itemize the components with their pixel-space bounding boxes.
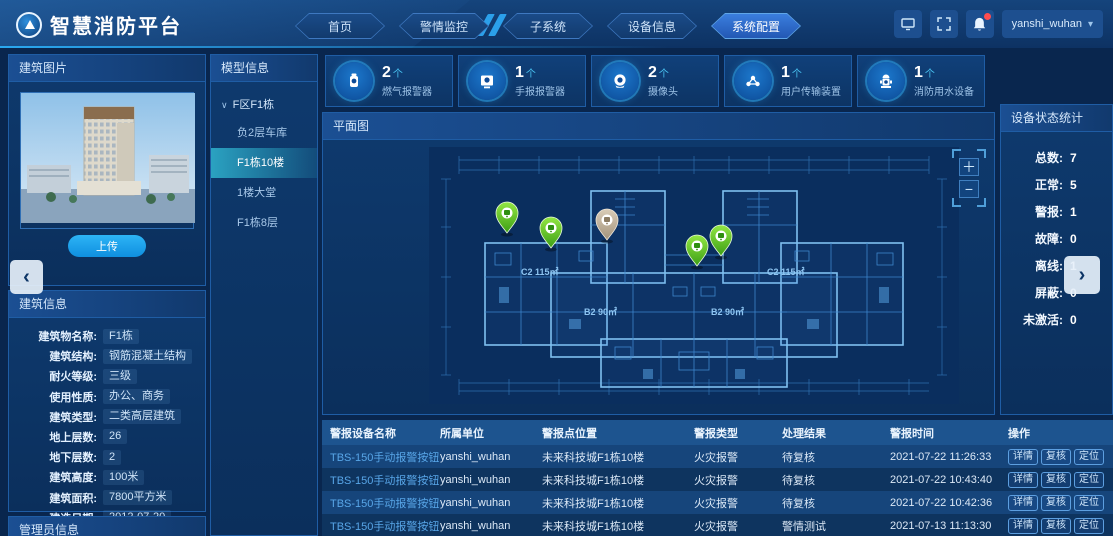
app-header: 智慧消防平台 首页 警情监控 子系统 设备信息 系统配置 y [0, 0, 1113, 48]
col-header-time: 警报时间 [890, 425, 1008, 441]
detail-button[interactable]: 详情 [1008, 495, 1038, 511]
result-cell: 待复核 [782, 472, 890, 488]
col-header-unit: 所属单位 [440, 425, 542, 441]
col-header-location: 警报点位置 [542, 425, 694, 441]
chevron-right-icon: › [1079, 264, 1086, 287]
status-label: 警报: [1001, 203, 1063, 220]
time-cell: 2021-07-22 11:26:33 [890, 451, 1008, 463]
stat-card-fire-water: 1个 消防用水设备 [857, 55, 985, 107]
transmission-device-icon [734, 62, 772, 100]
nav-tab-label: 警情监控 [400, 14, 488, 38]
info-row: 建筑结构:钢筋混凝土结构 [9, 348, 199, 364]
field-value: 7800平方米 [103, 490, 172, 505]
stat-count: 1 [914, 64, 923, 81]
nav-tab-home[interactable]: 首页 [295, 13, 385, 39]
col-header-device-name: 警报设备名称 [322, 425, 440, 441]
location-cell: 未来科技城F1栋10楼 [542, 472, 694, 488]
stat-count: 1 [781, 64, 790, 81]
actions-cell: 详情 复核 定位 [1008, 495, 1113, 511]
table-header-row: 警报设备名称 所属单位 警报点位置 警报类型 处理结果 警报时间 操作 [322, 420, 1113, 445]
camera-icon [601, 62, 639, 100]
stat-count: 1 [515, 64, 524, 81]
info-row: 地下层数:2 [9, 449, 199, 465]
manual-alarm-icon [468, 62, 506, 100]
building-photo [20, 92, 194, 229]
floorplan-drawing: C2 115㎡ B2 90㎡ B2 90㎡ C2 115㎡ [429, 147, 959, 404]
logo-icon [16, 12, 42, 38]
detail-button[interactable]: 详情 [1008, 449, 1038, 465]
room-label: B2 90㎡ [711, 306, 744, 317]
field-value: 100米 [103, 470, 144, 485]
plan-zoom-control: ＋ − [952, 149, 986, 207]
table-row[interactable]: TBS-150手动报警按钮 yanshi_wuhan 未来科技城F1栋10楼 火… [322, 445, 1113, 468]
field-value: 2 [103, 450, 121, 465]
unit-cell: yanshi_wuhan [440, 497, 542, 509]
model-info-panel: 模型信息 ∨F区F1栋 负2层车库 F1栋10楼 1楼大堂 F1栋8层 [210, 54, 318, 536]
type-cell: 火灾报警 [694, 518, 782, 534]
device-marker-normal[interactable] [686, 235, 708, 270]
stat-card-camera: 2个 摄像头 [591, 55, 719, 107]
tree-item-lobby[interactable]: 1楼大堂 [211, 178, 317, 208]
field-label: 地上层数: [9, 429, 97, 445]
actions-cell: 详情 复核 定位 [1008, 518, 1113, 534]
field-value: 26 [103, 429, 127, 444]
device-name-link[interactable]: TBS-150手动报警按钮 [322, 472, 440, 488]
tree-group-f1[interactable]: ∨F区F1栋 [211, 82, 317, 118]
stat-label: 消防用水设备 [914, 83, 974, 98]
tree-group-label: F区F1栋 [233, 99, 275, 111]
field-label: 耐火等级: [9, 368, 97, 384]
building-photo-image [21, 93, 195, 223]
review-button[interactable]: 复核 [1041, 495, 1071, 511]
locate-button[interactable]: 定位 [1074, 518, 1104, 534]
field-label: 建筑高度: [9, 469, 97, 485]
stat-card-transmission-device: 1个 用户传输装置 [724, 55, 852, 107]
room-label: C2 115㎡ [521, 266, 559, 277]
status-label: 故障: [1001, 230, 1063, 247]
header-actions: yanshi_wuhan ▾ [894, 10, 1103, 38]
result-cell: 警情测试 [782, 518, 890, 534]
device-name-link[interactable]: TBS-150手动报警按钮 [322, 449, 440, 465]
time-cell: 2021-07-13 11:13:30 [890, 520, 1008, 532]
device-status-list: 总数:7 正常:5 警报:1 故障:0 离线:1 屏蔽:0 未激活:0 [1001, 132, 1112, 333]
field-label: 建筑物名称: [9, 328, 97, 344]
floor-plan-panel: 平面图 [322, 112, 995, 415]
panel-title: 平面图 [323, 113, 994, 140]
stat-card-gas-alarm: 2个 燃气报警器 [325, 55, 453, 107]
monitor-icon [900, 16, 916, 32]
status-value: 5 [1070, 178, 1077, 192]
stat-label: 手报报警器 [515, 83, 565, 98]
chevron-down-icon: ▾ [1088, 19, 1093, 30]
stat-suffix: 个 [393, 69, 403, 80]
info-row: 建筑高度:100米 [9, 469, 199, 485]
building-image-panel: 建筑图片 上传 [8, 54, 206, 286]
screen-monitor-button[interactable] [894, 10, 922, 38]
detail-button[interactable]: 详情 [1008, 472, 1038, 488]
field-label: 使用性质: [9, 389, 97, 405]
admin-info-panel: 管理员信息 [8, 516, 206, 536]
locate-button[interactable]: 定位 [1074, 472, 1104, 488]
carousel-prev-button[interactable]: ‹ [10, 260, 43, 294]
status-label: 离线: [1001, 257, 1063, 274]
info-row: 耐火等级:三级 [9, 368, 199, 384]
room-label: B2 90㎡ [584, 306, 617, 317]
panel-title: 设备状态统计 [1001, 105, 1112, 132]
stat-suffix: 个 [792, 69, 802, 80]
table-row[interactable]: TBS-150手动报警按钮 yanshi_wuhan 未来科技城F1栋10楼 火… [322, 491, 1113, 514]
field-label: 建筑面积: [9, 490, 97, 506]
gas-alarm-icon [335, 62, 373, 100]
status-label: 屏蔽: [1001, 284, 1063, 301]
time-cell: 2021-07-22 10:42:36 [890, 497, 1008, 509]
nav-tab-label: 系统配置 [712, 14, 800, 38]
field-label: 地下层数: [9, 449, 97, 465]
fullscreen-icon [936, 16, 952, 32]
chevron-down-icon: ∨ [221, 100, 228, 110]
unit-cell: yanshi_wuhan [440, 451, 542, 463]
status-value: 1 [1070, 205, 1077, 219]
panel-title: 建筑图片 [9, 55, 205, 82]
zoom-in-button[interactable]: ＋ [959, 158, 979, 176]
tree-item-b2-garage[interactable]: 负2层车库 [211, 118, 317, 148]
detail-button[interactable]: 详情 [1008, 518, 1038, 534]
upload-button[interactable]: 上传 [68, 235, 146, 257]
time-cell: 2021-07-22 10:43:40 [890, 474, 1008, 486]
app-title: 智慧消防平台 [50, 10, 182, 39]
room-label: C2 115㎡ [767, 266, 805, 277]
location-cell: 未来科技城F1栋10楼 [542, 449, 694, 465]
table-row[interactable]: TBS-150手动报警按钮 yanshi_wuhan 未来科技城F1栋10楼 火… [322, 514, 1113, 536]
panel-title: 模型信息 [211, 55, 317, 82]
building-info-panel: 建筑信息 建筑物名称:F1栋 建筑结构:钢筋混凝土结构 耐火等级:三级 使用性质… [8, 290, 206, 512]
status-row: 警报:1 [1001, 198, 1112, 225]
building-info-list: 建筑物名称:F1栋 建筑结构:钢筋混凝土结构 耐火等级:三级 使用性质:办公、商… [9, 318, 205, 536]
status-row: 未激活:0 [1001, 306, 1112, 333]
nav-tab-system-config[interactable]: 系统配置 [711, 13, 801, 39]
stat-suffix: 个 [659, 69, 669, 80]
nav-tab-label: 首页 [296, 14, 384, 38]
table-row[interactable]: TBS-150手动报警按钮 yanshi_wuhan 未来科技城F1栋10楼 火… [322, 468, 1113, 491]
stat-suffix: 个 [925, 69, 935, 80]
panel-title: 管理员信息 [9, 517, 205, 536]
notifications-button[interactable] [966, 10, 994, 38]
notification-badge [984, 13, 991, 20]
location-cell: 未来科技城F1栋10楼 [542, 518, 694, 534]
alarm-table: 警报设备名称 所属单位 警报点位置 警报类型 处理结果 警报时间 操作 TBS-… [322, 420, 1113, 536]
info-row: 建筑面积:7800平方米 [9, 490, 199, 506]
fullscreen-button[interactable] [930, 10, 958, 38]
status-value: 7 [1070, 151, 1077, 165]
status-label: 正常: [1001, 176, 1063, 193]
field-label: 建筑结构: [9, 348, 97, 364]
tree-item-f1-floor8[interactable]: F1栋8层 [211, 208, 317, 238]
info-row: 地上层数:26 [9, 429, 199, 445]
main-nav: 首页 警情监控 子系统 设备信息 系统配置 [295, 13, 801, 39]
panel-title: 建筑信息 [9, 291, 205, 318]
stat-count: 2 [382, 64, 391, 81]
unit-cell: yanshi_wuhan [440, 474, 542, 486]
username: yanshi_wuhan [1012, 18, 1082, 30]
user-menu[interactable]: yanshi_wuhan ▾ [1002, 10, 1103, 38]
info-row: 使用性质:办公、商务 [9, 389, 199, 405]
tree-item-f1-floor10[interactable]: F1栋10楼 [211, 148, 317, 178]
info-row: 建筑物名称:F1栋 [9, 328, 199, 344]
nav-tab-label: 设备信息 [608, 14, 696, 38]
stat-label: 摄像头 [648, 83, 678, 98]
field-value: 办公、商务 [103, 389, 170, 404]
stat-suffix: 个 [526, 69, 536, 80]
device-marker-normal[interactable] [496, 202, 518, 237]
field-value: F1栋 [103, 329, 139, 344]
field-value: 钢筋混凝土结构 [103, 349, 192, 364]
fire-hydrant-icon [867, 62, 905, 100]
nav-tab-subsystem[interactable]: 子系统 [503, 13, 593, 39]
col-header-type: 警报类型 [694, 425, 782, 441]
status-row: 正常:5 [1001, 171, 1112, 198]
status-row: 总数:7 [1001, 144, 1112, 171]
app-logo: 智慧消防平台 [16, 10, 182, 39]
review-button[interactable]: 复核 [1041, 449, 1071, 465]
stat-card-manual-alarm: 1个 手报报警器 [458, 55, 586, 107]
col-header-actions: 操作 [1008, 425, 1113, 441]
field-value: 三级 [103, 369, 137, 384]
zoom-out-button[interactable]: − [959, 180, 979, 198]
nav-tab-alarm-monitor[interactable]: 警情监控 [399, 13, 489, 39]
location-cell: 未来科技城F1栋10楼 [542, 495, 694, 511]
locate-button[interactable]: 定位 [1074, 495, 1104, 511]
nav-tab-device-info[interactable]: 设备信息 [607, 13, 697, 39]
type-cell: 火灾报警 [694, 495, 782, 511]
floor-plan-canvas[interactable]: C2 115㎡ B2 90㎡ B2 90㎡ C2 115㎡ [429, 147, 959, 404]
carousel-next-button[interactable]: › [1064, 256, 1100, 294]
actions-cell: 详情 复核 定位 [1008, 449, 1113, 465]
type-cell: 火灾报警 [694, 449, 782, 465]
stat-count: 2 [648, 64, 657, 81]
status-row: 故障:0 [1001, 225, 1112, 252]
stat-label: 燃气报警器 [382, 83, 432, 98]
status-value: 0 [1070, 232, 1077, 246]
device-name-link[interactable]: TBS-150手动报警按钮 [322, 518, 440, 534]
nav-tab-label: 子系统 [504, 14, 592, 38]
review-button[interactable]: 复核 [1041, 518, 1071, 534]
type-cell: 火灾报警 [694, 472, 782, 488]
result-cell: 待复核 [782, 495, 890, 511]
device-name-link[interactable]: TBS-150手动报警按钮 [322, 495, 440, 511]
field-value: 二类高层建筑 [103, 409, 181, 424]
locate-button[interactable]: 定位 [1074, 449, 1104, 465]
actions-cell: 详情 复核 定位 [1008, 472, 1113, 488]
status-label: 未激活: [1001, 311, 1063, 328]
status-value: 0 [1070, 313, 1077, 327]
review-button[interactable]: 复核 [1041, 472, 1071, 488]
stat-label: 用户传输装置 [781, 83, 841, 98]
col-header-result: 处理结果 [782, 425, 890, 441]
chevron-left-icon: ‹ [23, 266, 30, 289]
unit-cell: yanshi_wuhan [440, 520, 542, 532]
result-cell: 待复核 [782, 449, 890, 465]
info-row: 建筑类型:二类高层建筑 [9, 409, 199, 425]
field-label: 建筑类型: [9, 409, 97, 425]
status-label: 总数: [1001, 149, 1063, 166]
